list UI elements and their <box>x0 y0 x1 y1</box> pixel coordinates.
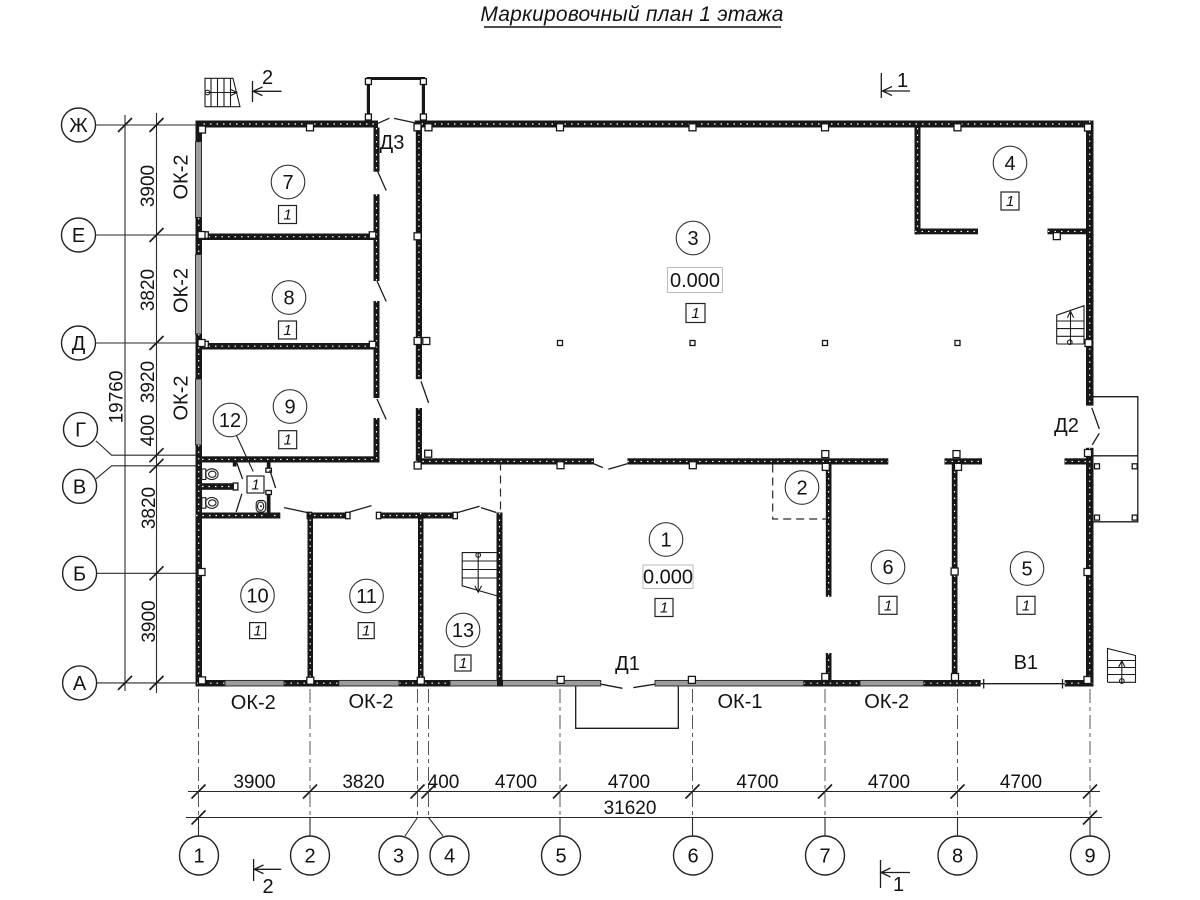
svg-text:400: 400 <box>428 772 460 793</box>
svg-text:А: А <box>73 673 87 695</box>
svg-text:1: 1 <box>284 432 292 449</box>
svg-text:9: 9 <box>1084 846 1095 868</box>
svg-text:1: 1 <box>691 305 699 322</box>
svg-text:5: 5 <box>555 846 566 868</box>
svg-text:ОК-2: ОК-2 <box>864 691 909 713</box>
svg-text:6: 6 <box>687 846 698 868</box>
svg-text:Д: Д <box>72 333 86 355</box>
svg-text:3820: 3820 <box>138 269 159 311</box>
svg-text:3820: 3820 <box>139 487 160 529</box>
svg-text:1: 1 <box>897 70 908 92</box>
svg-text:2: 2 <box>796 478 807 500</box>
svg-text:1: 1 <box>1006 193 1014 210</box>
svg-text:1: 1 <box>660 530 671 552</box>
svg-text:7: 7 <box>819 846 830 868</box>
svg-text:1: 1 <box>251 477 259 494</box>
svg-text:0.000: 0.000 <box>670 270 720 292</box>
svg-text:3900: 3900 <box>233 772 275 793</box>
svg-text:2: 2 <box>304 846 315 868</box>
svg-text:8: 8 <box>952 846 963 868</box>
svg-text:8: 8 <box>283 288 294 310</box>
svg-text:5: 5 <box>1021 559 1032 581</box>
svg-text:11: 11 <box>356 586 377 608</box>
svg-text:ОК-2: ОК-2 <box>171 376 193 421</box>
svg-text:4: 4 <box>1004 153 1015 175</box>
svg-text:1: 1 <box>893 874 904 896</box>
svg-text:3920: 3920 <box>138 361 159 403</box>
svg-text:1: 1 <box>362 623 370 640</box>
svg-text:1: 1 <box>459 655 467 672</box>
svg-text:1: 1 <box>884 597 892 614</box>
svg-text:10: 10 <box>246 586 268 608</box>
svg-text:6: 6 <box>882 557 893 579</box>
svg-text:Маркировочный план 1 этажа: Маркировочный план 1 этажа <box>480 3 783 26</box>
svg-text:2: 2 <box>262 67 273 89</box>
svg-text:0.000: 0.000 <box>643 567 693 589</box>
svg-text:3900: 3900 <box>139 600 160 642</box>
svg-text:1: 1 <box>1022 597 1030 614</box>
svg-text:3: 3 <box>687 228 698 250</box>
svg-text:400: 400 <box>138 415 159 447</box>
svg-text:ОК-1: ОК-1 <box>718 691 763 713</box>
svg-text:В: В <box>73 476 86 498</box>
svg-text:В1: В1 <box>1014 652 1038 674</box>
svg-text:2: 2 <box>263 876 274 898</box>
svg-text:Е: Е <box>72 225 85 247</box>
svg-text:Б: Б <box>73 563 86 585</box>
svg-text:ОК-2: ОК-2 <box>349 691 394 713</box>
svg-text:Д1: Д1 <box>615 653 640 675</box>
svg-text:12: 12 <box>219 410 241 432</box>
svg-text:4700: 4700 <box>1000 772 1042 793</box>
svg-text:1: 1 <box>283 322 291 339</box>
svg-text:4700: 4700 <box>495 772 537 793</box>
svg-text:ОК-2: ОК-2 <box>171 268 193 313</box>
svg-text:4700: 4700 <box>608 772 650 793</box>
svg-text:Д3: Д3 <box>380 132 405 154</box>
svg-text:4700: 4700 <box>736 772 778 793</box>
svg-text:4700: 4700 <box>868 772 910 793</box>
svg-text:Д2: Д2 <box>1054 415 1079 437</box>
svg-text:4: 4 <box>444 846 455 868</box>
svg-text:ОК-2: ОК-2 <box>231 692 276 714</box>
svg-text:3: 3 <box>393 846 404 868</box>
svg-text:1: 1 <box>660 600 668 617</box>
svg-text:3900: 3900 <box>138 165 159 207</box>
svg-text:1: 1 <box>283 207 291 224</box>
svg-text:1: 1 <box>253 623 261 640</box>
svg-text:1: 1 <box>193 846 204 868</box>
svg-text:19760: 19760 <box>107 371 128 424</box>
svg-text:Ж: Ж <box>69 115 88 137</box>
svg-text:3820: 3820 <box>342 772 384 793</box>
svg-text:9: 9 <box>284 397 295 419</box>
svg-text:7: 7 <box>282 172 293 194</box>
svg-text:31620: 31620 <box>604 798 657 819</box>
svg-text:13: 13 <box>452 620 474 642</box>
svg-text:Г: Г <box>75 419 86 441</box>
svg-text:ОК-2: ОК-2 <box>171 155 193 200</box>
